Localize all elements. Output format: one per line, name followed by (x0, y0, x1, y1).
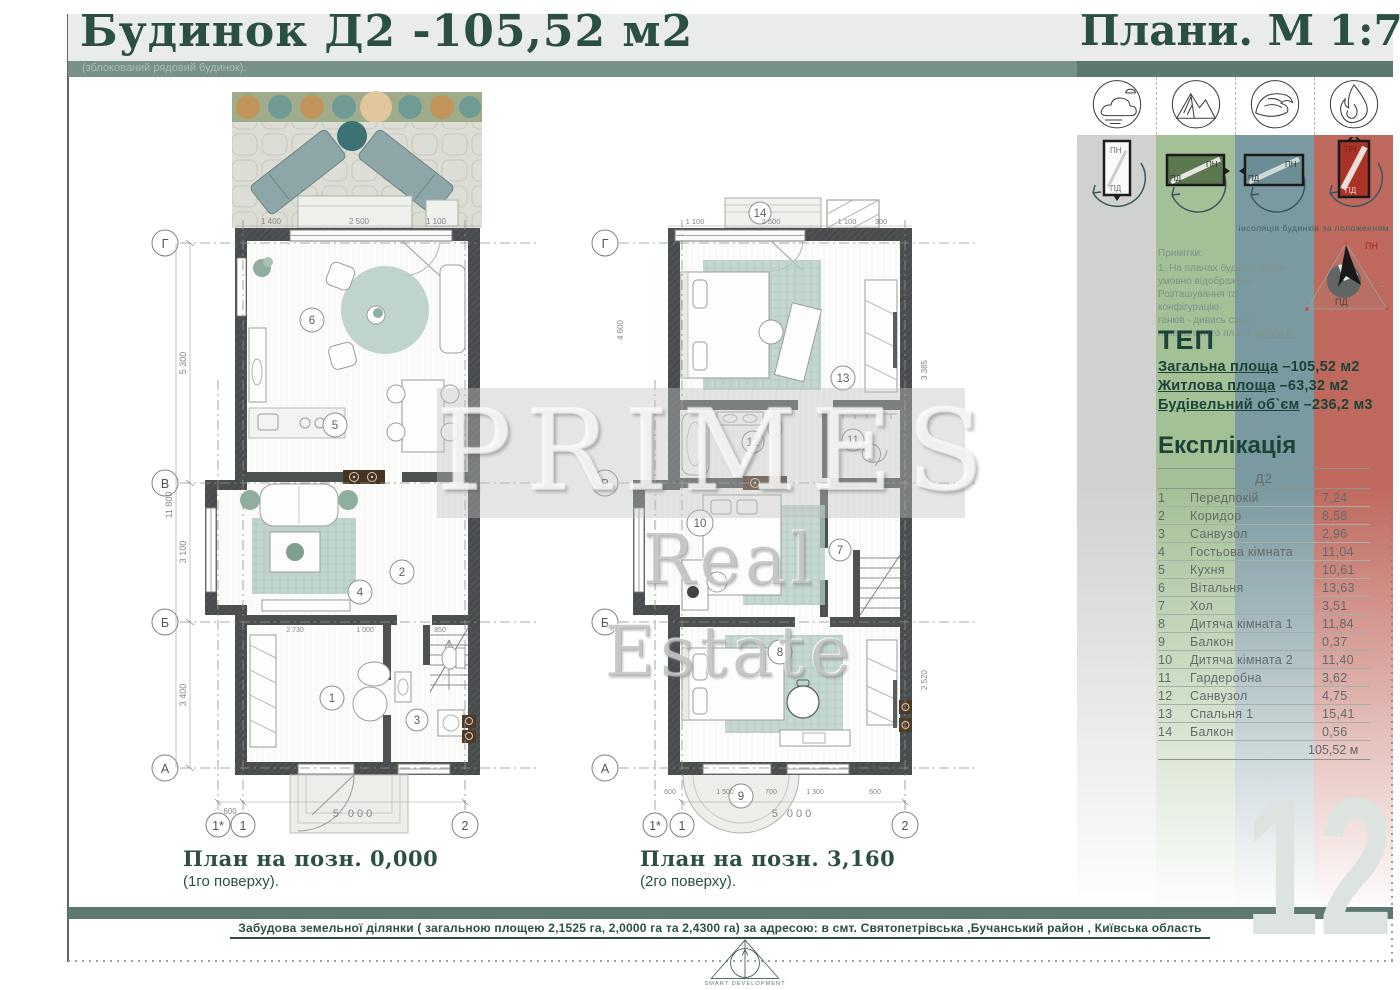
notes-line: 1. На планах будинку ганки (1158, 262, 1298, 275)
dim-label: 300 (875, 217, 888, 226)
explication-rows: 1Передпокій7,242Коридор8,583Санвузол2,96… (1158, 489, 1370, 741)
room-number: 8 (777, 647, 783, 659)
explication-row: 8Дитяча кімната 111,84 (1158, 615, 1370, 633)
explication-block: Експлікація Д2 1Передпокій7,242Коридор8,… (1158, 432, 1370, 760)
compass-icon: ПН ПД З С (1299, 235, 1394, 330)
logo-caption: SMART DEVELOPMENT (704, 981, 785, 987)
patio-table (337, 121, 367, 151)
axis-col-label: 2 (462, 819, 469, 833)
room-number: 13 (837, 373, 850, 385)
terrace (232, 91, 482, 228)
window-south-label: ПД (1110, 184, 1122, 193)
dim-label: 5 000 (333, 808, 376, 820)
dim-label: 1 300 (806, 789, 824, 796)
dim-label: 2 730 (286, 627, 304, 634)
floor-plan-level-1: Г В Б А 1* 1 2 6 5 4 2 1 3 5 300 3 100 3… (140, 80, 540, 870)
tep-line: Будівельний об`єм –236,2 м3 (1158, 397, 1378, 413)
notes-title: Примітки: (1158, 247, 1298, 260)
dim-label: 1 100 (838, 217, 857, 226)
room-number: 9 (738, 791, 744, 803)
explication-row: 11Гардеробна3,62 (1158, 669, 1370, 687)
dim-label: 5 300 (178, 352, 188, 375)
dim-label: 5 000 (772, 808, 815, 820)
notes-line: Розташування та конфігурацію (1158, 288, 1298, 314)
axis-row-label: Б (161, 616, 169, 630)
room-number: 10 (694, 518, 707, 530)
dim-label: 2 500 (349, 217, 370, 226)
subtitle-text: (зблокований рядовий будинок). (68, 61, 1077, 74)
tep-value: –236,2 м3 (1299, 397, 1372, 413)
flue-block (343, 470, 385, 484)
dim-label: 1 100 (686, 217, 705, 226)
explication-total: 105,52 м (1308, 743, 1370, 757)
tep-title: ТЕП (1158, 325, 1378, 356)
dim-label: 600 (223, 807, 237, 816)
dim-label: 1 400 (261, 217, 282, 226)
axis-col-label: 1 (240, 819, 247, 833)
axis-row-label: Г (162, 237, 169, 251)
compass-east-label: С (1379, 282, 1384, 289)
room-number: 1 (329, 693, 335, 705)
tep-value: –63,32 м2 (1275, 378, 1348, 394)
room-number: 6 (309, 315, 315, 327)
explication-row: 7Хол3,51 (1158, 597, 1370, 615)
window-diagram-1: ПН ПД (1077, 137, 1156, 223)
plan2-caption: План на позн. 3,160 (640, 846, 895, 871)
insolation-column-gray (1077, 135, 1156, 915)
window-south-label: ПД (1170, 174, 1182, 183)
dim-label: 11 800 (164, 492, 174, 519)
compass-north-label: ПН (1365, 241, 1378, 251)
dim-label: 2 520 (920, 669, 929, 690)
dim-label: 1 100 (426, 217, 447, 226)
plan1-caption: План на позн. 0,000 (183, 846, 438, 871)
bedroom-furniture (681, 260, 897, 392)
room-number: 12 (747, 437, 760, 449)
explication-row: 3Санвузол2,96 (1158, 525, 1370, 543)
floor-plan-level-2: Г В Б А 1* 1 2 14 13 12 11 10 7 8 9 1 10… (575, 80, 985, 870)
axis-row-label: А (161, 762, 170, 776)
axis-col-label: 1* (212, 819, 224, 833)
entrance-porch (290, 775, 408, 833)
axis-row-markers (592, 230, 618, 781)
dim-label: 1 000 (356, 627, 374, 634)
axis-col-label: 1* (649, 819, 661, 833)
dim-label: 850 (434, 627, 446, 634)
explication-column-header: Д2 (1158, 468, 1370, 489)
dim-label: 3 385 (920, 359, 929, 380)
axis-row-label: А (601, 762, 610, 776)
tep-label: Будівельний об`єм (1158, 397, 1299, 413)
window-south-label: ПД (1248, 174, 1260, 183)
axis-row-label: В (601, 477, 609, 491)
room-number: 2 (399, 567, 405, 579)
air-icon (1077, 77, 1156, 135)
sidebar-strip (1077, 61, 1393, 77)
explication-row: 4Гостьова кімната11,04 (1158, 543, 1370, 561)
explication-row: 14Балкон0,56 (1158, 723, 1370, 741)
explication-row: 9Балкон0,37 (1158, 633, 1370, 651)
explication-row: 2Коридор8,58 (1158, 507, 1370, 525)
plan2-caption-sub: (2го поверху). (640, 873, 895, 890)
explication-row: 5Кухня10,61 (1158, 561, 1370, 579)
tep-value: –105,52 м2 (1278, 359, 1359, 375)
explication-row: 10Дитяча кімната 211,40 (1158, 651, 1370, 669)
insolation-caption: інсоляція будинків за положенням (1227, 223, 1389, 233)
window-north-label: ПН (1206, 160, 1218, 169)
tep-block: ТЕП Загальна площа –105,52 м2 Житлова пл… (1158, 325, 1378, 413)
room-number: 3 (414, 715, 420, 727)
tep-line: Житлова площа –63,32 м2 (1158, 378, 1378, 394)
compass-west-label: З (1309, 282, 1313, 289)
axis-row-label: В (161, 477, 169, 491)
window-south-label: ПД (1345, 186, 1357, 195)
explication-row: 13Спальня 115,41 (1158, 705, 1370, 723)
explication-title: Експлікація (1158, 432, 1370, 460)
sheet-number: 12 (1228, 782, 1393, 952)
window-diagram-3: ПН ПД (1235, 137, 1314, 223)
dim-label: 600 (869, 789, 881, 796)
room-number: 7 (837, 545, 843, 557)
dim-label: 4 600 (616, 319, 625, 340)
dim-label: 1 500 (716, 789, 734, 796)
plan1-caption-sub: (1го поверху). (183, 873, 438, 890)
dim-label: 3 100 (178, 541, 188, 564)
window-north-label: ПН (1285, 160, 1297, 169)
explication-row: 1Передпокій7,24 (1158, 489, 1370, 507)
axis-col-label: 1 (679, 819, 686, 833)
dim-label: 2 500 (762, 217, 781, 226)
tep-label: Житлова площа (1158, 378, 1275, 394)
notes-line: умовно відображені. (1158, 275, 1298, 288)
room-number: 4 (357, 587, 364, 599)
room-number: 5 (332, 420, 338, 432)
scale-label: Плани. М 1:75 (1080, 6, 1390, 55)
guest-room-furniture (240, 484, 358, 611)
water-icon (1235, 77, 1314, 135)
left-margin-line (67, 14, 69, 962)
dim-label: 600 (664, 789, 676, 796)
dim-label: 700 (765, 789, 777, 796)
site-description: Забудова земельної ділянки ( загальною п… (230, 921, 1210, 939)
axis-col-label: 2 (902, 819, 909, 833)
element-icons-band (1077, 77, 1393, 135)
tep-line: Загальна площа –105,52 м2 (1158, 359, 1378, 375)
plan-sheet-page: Будинок Д2 -105,52 м2 Плани. М 1:75 (збл… (0, 0, 1400, 990)
compass-south-label: ПД (1335, 297, 1348, 307)
explication-row: 12Санвузол4,75 (1158, 687, 1370, 705)
axis-row-label: Г (602, 237, 609, 251)
tep-label: Загальна площа (1158, 359, 1278, 375)
explication-row: 6Вітальня13,63 (1158, 579, 1370, 597)
footer-bar (68, 907, 1393, 919)
mountains-icon (1156, 77, 1235, 135)
axis-row-label: Б (601, 616, 609, 630)
fire-icon (1314, 77, 1393, 135)
subtitle-strip: (зблокований рядовий будинок). (68, 61, 1077, 77)
window-north-label: ПН (1110, 146, 1122, 155)
dim-label: 3 400 (178, 684, 188, 707)
page-title: Будинок Д2 -105,52 м2 (80, 6, 693, 57)
window-diagram-2: ПН ПД (1156, 137, 1235, 223)
window-north-label: ПН (1345, 145, 1357, 154)
window-diagram-4: ПН ПД (1314, 137, 1393, 223)
room-number: 11 (847, 435, 859, 447)
developer-logo: SMART DEVELOPMENT (700, 938, 790, 988)
